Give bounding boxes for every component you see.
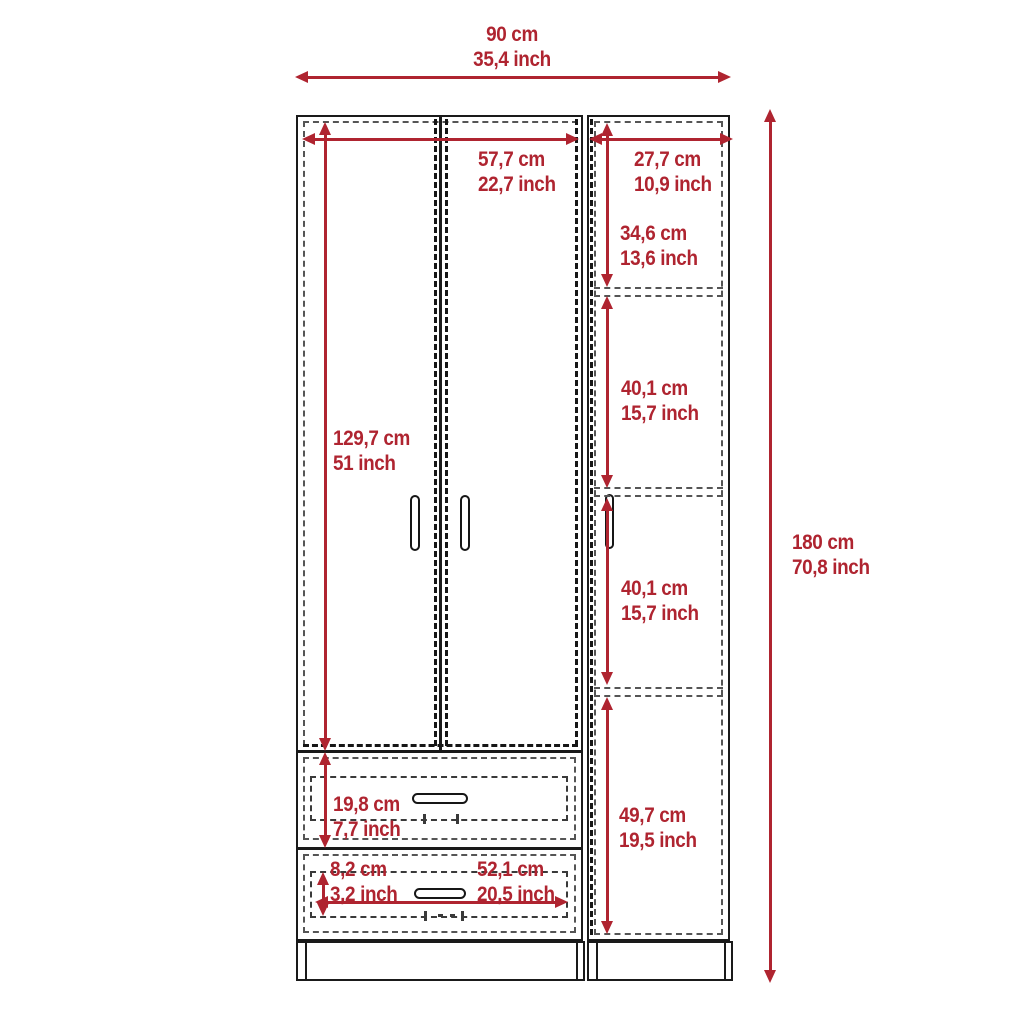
right-base-leg-line-2 (724, 943, 726, 979)
drawer-width-cm: 52,1 cm (477, 857, 555, 882)
overall-height-inch: 70,8 inch (792, 555, 870, 580)
middle-door-handle (460, 495, 470, 551)
left-base-leg-line-1 (305, 943, 307, 979)
arrow-drawer-height (324, 763, 327, 837)
dim-label-bottom-compartment-height: 49,7 cm 19,5 inch (619, 803, 697, 853)
drawer2-slide-dot-1 (438, 914, 443, 917)
left-base-outline (296, 941, 585, 981)
drawer-front-height-cm: 8,2 cm (330, 857, 398, 882)
drawer-width-inch: 20,5 inch (477, 882, 555, 907)
upper-middle-compartment-inch: 15,7 inch (621, 401, 699, 426)
right-shelf1-bottom-dashed-line (594, 295, 723, 297)
left-door-left-dashed-edge (303, 121, 305, 746)
drawer2-slide-mark-left (424, 911, 427, 921)
side-section-width-inch: 10,9 inch (634, 172, 712, 197)
dim-label-drawer-width: 52,1 cm 20,5 inch (477, 857, 555, 907)
dim-label-lower-middle-compartment-height: 40,1 cm 15,7 inch (621, 576, 699, 626)
bottom-compartment-cm: 49,7 cm (619, 803, 697, 828)
overall-width-cm: 90 cm (440, 22, 584, 47)
dim-label-upper-middle-compartment-height: 40,1 cm 15,7 inch (621, 376, 699, 426)
arrow-top-compartment-height (606, 134, 609, 276)
dim-label-overall-height: 180 cm 70,8 inch (792, 530, 870, 580)
lower-middle-compartment-cm: 40,1 cm (621, 576, 699, 601)
drawer1-slide-mark-right (456, 814, 459, 824)
dim-label-side-section-width: 27,7 cm 10,9 inch (634, 147, 712, 197)
door-height-inch: 51 inch (333, 451, 410, 476)
bottom-compartment-inch: 19,5 inch (619, 828, 697, 853)
dim-label-top-compartment-height: 34,6 cm 13,6 inch (620, 221, 698, 271)
left-door-right-dashed-edge (434, 119, 437, 746)
right-shelf2-bottom-dashed-line (594, 495, 723, 497)
overall-width-inch: 35,4 inch (440, 47, 584, 72)
door-section-width-inch: 22,7 inch (478, 172, 556, 197)
door-section-width-cm: 57,7 cm (478, 147, 556, 172)
side-section-width-cm: 27,7 cm (634, 147, 712, 172)
door-height-cm: 129,7 cm (333, 426, 410, 451)
drawer2-slide-mark-right (461, 911, 464, 921)
middle-door-left-dashed-edge (445, 119, 448, 746)
drawer2-handle (414, 888, 466, 899)
right-shelf3-top-dashed-line (594, 687, 723, 689)
top-compartment-cm: 34,6 cm (620, 221, 698, 246)
arrow-overall-height (769, 120, 772, 972)
dim-label-door-section-width: 57,7 cm 22,7 inch (478, 147, 556, 197)
upper-middle-compartment-cm: 40,1 cm (621, 376, 699, 401)
dim-label-overall-width: 90 cm 35,4 inch (440, 22, 584, 72)
drawer2-slide-dot-2 (450, 914, 455, 917)
dim-label-drawer-height: 19,8 cm 7,7 inch (333, 792, 401, 842)
drawer1-top-edge (296, 750, 583, 753)
drawer2-top-edge (296, 847, 583, 850)
middle-door-right-dashed-edge (575, 119, 578, 746)
arrow-door-height (324, 133, 327, 740)
right-base-outline (587, 941, 733, 981)
right-shelf1-top-dashed-line (594, 287, 723, 289)
left-base-leg-line-2 (576, 943, 578, 979)
right-shelf2-top-dashed-line (594, 487, 723, 489)
drawer1-handle (412, 793, 468, 804)
arrow-upper-middle-compartment-height (606, 307, 609, 477)
drawer-front-height-inch: 3,2 inch (330, 882, 398, 907)
arrow-lower-middle-compartment-height (606, 509, 609, 674)
lower-middle-compartment-inch: 15,7 inch (621, 601, 699, 626)
dim-label-drawer-front-height: 8,2 cm 3,2 inch (330, 857, 398, 907)
right-base-leg-line-1 (596, 943, 598, 979)
arrow-bottom-compartment-height (606, 708, 609, 923)
left-door-handle (410, 495, 420, 551)
dim-label-door-height: 129,7 cm 51 inch (333, 426, 410, 476)
drawer-height-cm: 19,8 cm (333, 792, 401, 817)
right-shelf3-bottom-dashed-line (594, 695, 723, 697)
doors-bottom-dashed-edge (303, 744, 578, 747)
right-door-hinge-dashed-edge (590, 119, 593, 935)
drawer1-slide-mark-left (423, 814, 426, 824)
arrow-door-section-width (313, 138, 568, 141)
top-compartment-inch: 13,6 inch (620, 246, 698, 271)
wardrobe-dimension-diagram: 90 cm 35,4 inch 180 cm 70,8 inch 57,7 cm… (0, 0, 1024, 1024)
drawer-height-inch: 7,7 inch (333, 817, 401, 842)
door-center-divider (439, 115, 442, 752)
arrow-overall-width (306, 76, 720, 79)
overall-height-cm: 180 cm (792, 530, 870, 555)
arrow-side-section-width (600, 138, 722, 141)
